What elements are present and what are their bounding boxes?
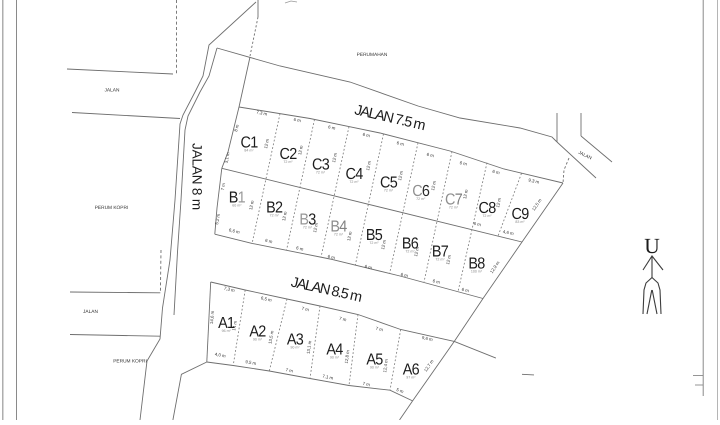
- svg-text:72 m²: 72 m²: [369, 241, 379, 245]
- svg-text:90 m²: 90 m²: [330, 356, 340, 360]
- svg-text:84 m²: 84 m²: [244, 149, 254, 153]
- svg-text:90 m²: 90 m²: [290, 346, 300, 350]
- svg-text:JALAN 8 m: JALAN 8 m: [190, 143, 205, 210]
- svg-text:U: U: [644, 234, 660, 258]
- svg-text:83 m²: 83 m²: [515, 220, 525, 224]
- svg-text:JALAN: JALAN: [105, 88, 120, 94]
- svg-text:PERUM KOPRI: PERUM KOPRI: [113, 359, 147, 365]
- svg-text:97 m²: 97 m²: [406, 376, 416, 380]
- svg-text:PERUMAHAN: PERUMAHAN: [357, 52, 388, 58]
- svg-text:60 m²: 60 m²: [232, 203, 242, 207]
- svg-text:72 m²: 72 m²: [283, 160, 293, 164]
- svg-text:72 m²: 72 m²: [316, 171, 326, 175]
- svg-text:72 m²: 72 m²: [482, 214, 492, 218]
- svg-text:72 m²: 72 m²: [303, 226, 313, 230]
- svg-text:90 m²: 90 m²: [253, 338, 263, 342]
- svg-text:100 m²: 100 m²: [471, 269, 483, 273]
- svg-text:72 m²: 72 m²: [435, 258, 445, 262]
- svg-text:72 m²: 72 m²: [334, 233, 344, 237]
- svg-text:72 m²: 72 m²: [449, 206, 459, 210]
- svg-text:72 m²: 72 m²: [416, 197, 426, 201]
- svg-text:JALAN: JALAN: [83, 309, 98, 315]
- svg-text:90 m²: 90 m²: [370, 366, 380, 370]
- svg-text:72 m²: 72 m²: [270, 214, 280, 218]
- svg-text:72 m²: 72 m²: [349, 180, 359, 184]
- svg-text:96 m²: 96 m²: [222, 329, 232, 333]
- svg-text:72 m²: 72 m²: [384, 188, 394, 192]
- svg-text:PERUM KOPRI: PERUM KOPRI: [95, 205, 129, 211]
